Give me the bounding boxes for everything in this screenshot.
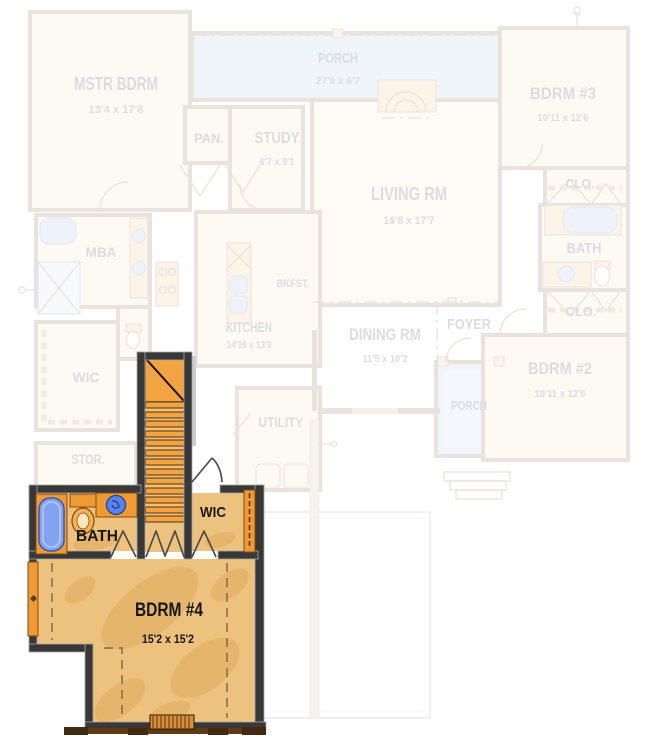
ff-porch-column [333, 29, 343, 38]
ff-wic-label: WIC [73, 369, 100, 385]
ff-pantry-label: PAN. [194, 130, 224, 146]
ff-stor-label: STOR. [72, 451, 105, 467]
ff-dining-rm-dims: 11'5 x 10'2 [363, 353, 408, 365]
ff-dining-wall [312, 330, 317, 411]
sill-block [128, 728, 148, 735]
ff-toilet-tank [126, 324, 141, 332]
ff-mba-sink [133, 262, 146, 275]
ff-washer [256, 464, 280, 488]
sf-left-window [28, 562, 38, 636]
ff-porch-step [456, 490, 502, 499]
ff-mstr-bdrm-dims: 13'4 x 17'8 [89, 104, 144, 116]
ff-dining-rm-label: DINING RM [349, 325, 421, 344]
ff-toilet-bowl [595, 266, 610, 286]
ff-hose-bib [332, 442, 337, 447]
sf-wic-label: WIC [200, 504, 226, 521]
ff-mba-sink [133, 230, 146, 243]
right-exterior-wall [255, 485, 264, 730]
ff-bath-right-label: BATH [567, 240, 602, 257]
ff-study-label: STUDY [255, 130, 300, 147]
ff-bkfst-label: BKFST. [277, 278, 310, 290]
wic-top-door [192, 458, 222, 482]
ff-mstr-bdrm-label: MSTR BDRM [74, 74, 158, 94]
ff-study-dims: 6'7 x 9'1 [260, 157, 295, 168]
sf-bdrm4-label: BDRM #4 [135, 600, 203, 621]
bdrm4-lower-left-wall [85, 644, 93, 730]
ff-range [156, 262, 178, 306]
ff-kitchen-dims: 14'10 x 13'3 [227, 340, 272, 351]
ff-kitchen-sink [230, 296, 247, 313]
sill-block [208, 728, 228, 735]
ff-utility-label: UTILITY [259, 414, 305, 430]
ff-patio-inner [258, 518, 424, 712]
ff-porch-rear-label: PORCH [451, 398, 487, 413]
ff-patio-wall-band [310, 420, 319, 718]
ff-living-rm-label: LIVING RM [371, 184, 447, 204]
ff-porch-step [444, 472, 510, 481]
stairwell-right-wall [184, 352, 192, 559]
stair-outer-trim [192, 356, 196, 446]
ff-clo-lower-label: CLO. [566, 304, 597, 319]
ff-foyer-label: FOYER [447, 316, 491, 333]
ff-porch-front-label: PORCH [318, 50, 358, 67]
toilet-seat [77, 513, 89, 529]
ff-porch-front-dims: 27'9 x 6'7 [316, 75, 360, 87]
ff-door-arc [446, 338, 470, 362]
ff-toilet-bowl [127, 332, 140, 349]
ff-porch-step [450, 481, 506, 490]
ff-hose-bib [573, 14, 581, 28]
floorplan-svg: MSTR BDRM 13'4 x 17'8 PORCH 27'9 x 6'7 B… [0, 0, 650, 748]
bath-top-wall [29, 485, 141, 493]
sf-bdrm4-dims: 15'2 x 15'2 [142, 634, 194, 646]
ff-bath-tub [563, 207, 617, 233]
stairwell-left-wall [137, 352, 145, 559]
sf-wic-closet [244, 490, 255, 552]
ff-door-arc [500, 309, 526, 335]
ff-hose-bib [574, 7, 580, 13]
ff-patio-outline [252, 512, 430, 718]
ff-kitchen-sink [230, 276, 247, 293]
ff-dryer [284, 464, 308, 488]
ff-mba-tub [40, 218, 76, 244]
ff-bdrm-3-dims: 10'11 x 12'6 [538, 112, 589, 124]
ff-kitchen-label: KITCHEN [226, 319, 272, 335]
ff-living-rm-dims: 16'8 x 17'7 [384, 215, 435, 227]
toilet-tank [70, 494, 96, 507]
sill-end-cap [64, 727, 88, 735]
ff-bath-sink [558, 266, 574, 282]
sf-bath-label: BATH [76, 528, 118, 545]
ff-bdrm-2-dims: 10'11 x 12'6 [535, 388, 586, 400]
sink [107, 496, 126, 515]
floor-plan-canvas: MSTR BDRM 13'4 x 17'8 PORCH 27'9 x 6'7 B… [0, 0, 650, 748]
ff-bdrm-3-label: BDRM #3 [530, 84, 596, 103]
ff-bdrm-2-label: BDRM #2 [528, 359, 592, 378]
ff-porch-column [494, 357, 504, 366]
ff-clo-upper-label: CLO. [566, 176, 595, 191]
ff-mba-label: MBA [86, 244, 117, 260]
bdrm4-step-wall [29, 644, 93, 652]
sf-stair-landing-floor [145, 522, 185, 552]
ff-hose-bib [19, 287, 25, 293]
sill-end-cap [242, 727, 266, 735]
